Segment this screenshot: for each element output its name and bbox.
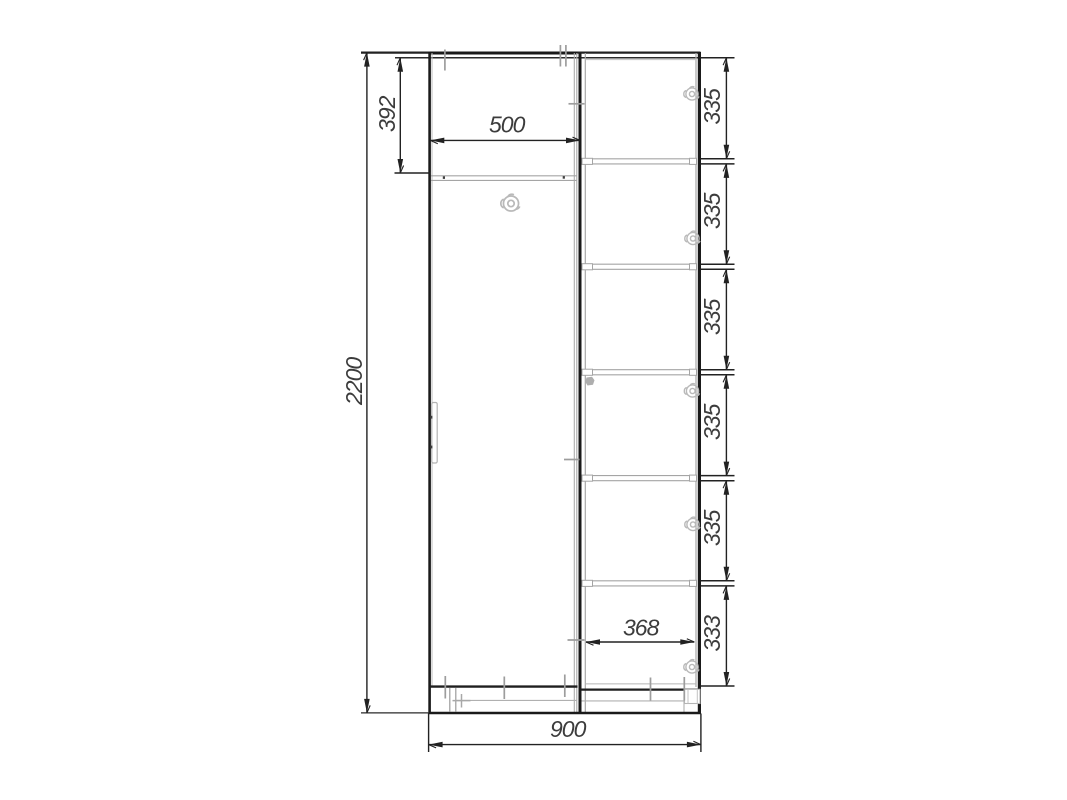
svg-text:500: 500 <box>489 112 526 138</box>
svg-text:335: 335 <box>699 298 725 335</box>
svg-text:335: 335 <box>699 88 725 125</box>
svg-text:2200: 2200 <box>341 357 367 406</box>
svg-text:900: 900 <box>550 716 587 742</box>
svg-text:333: 333 <box>699 615 725 652</box>
svg-text:335: 335 <box>699 403 725 440</box>
svg-text:335: 335 <box>699 509 725 546</box>
svg-text:368: 368 <box>623 615 660 641</box>
svg-text:335: 335 <box>699 192 725 229</box>
svg-text:392: 392 <box>374 95 400 132</box>
